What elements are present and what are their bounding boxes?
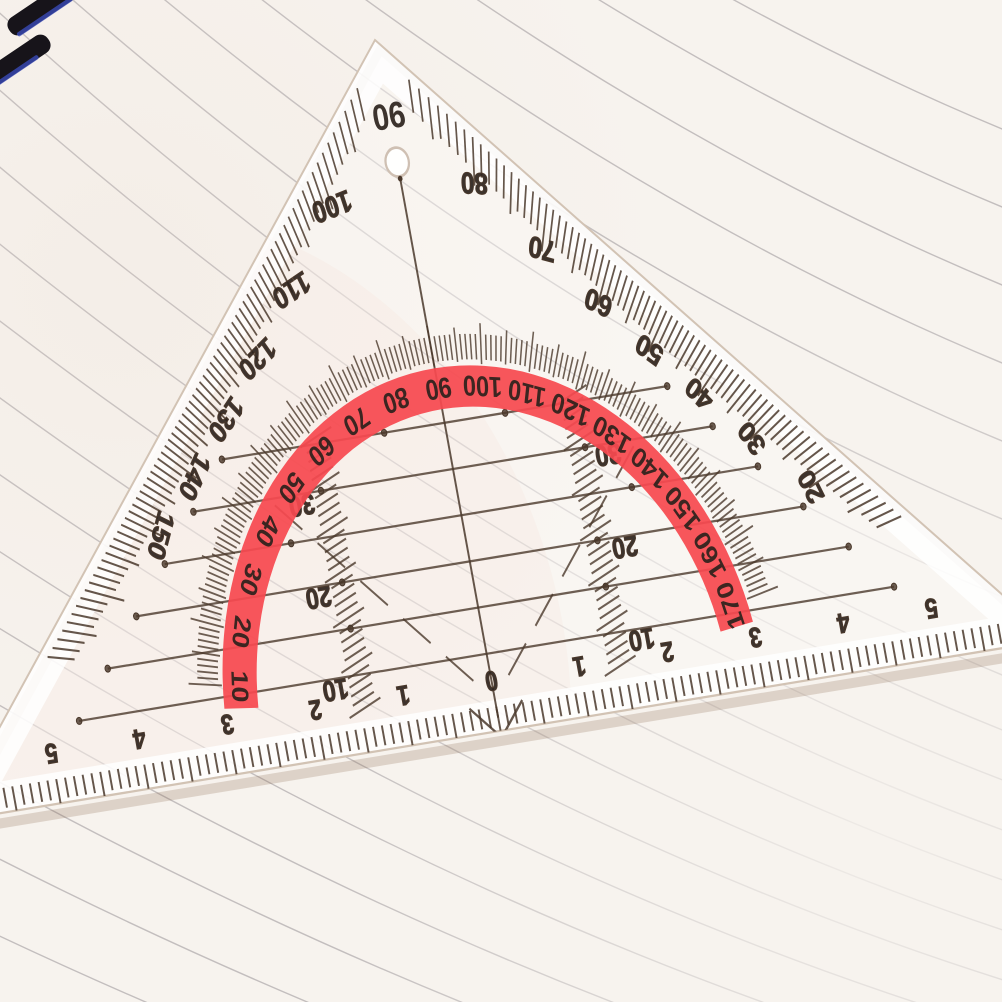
arc-degree-label: 100 xyxy=(462,369,502,404)
notebook-scene: 1010202030300112233445580706050403020100… xyxy=(0,0,1002,1002)
degree-label: 70 xyxy=(527,229,557,269)
arc-degree-label: 10 xyxy=(226,670,254,703)
degree-label: 80 xyxy=(460,166,488,201)
geo-triangle-photo: 1010202030300112233445580706050403020100… xyxy=(0,0,1002,1002)
